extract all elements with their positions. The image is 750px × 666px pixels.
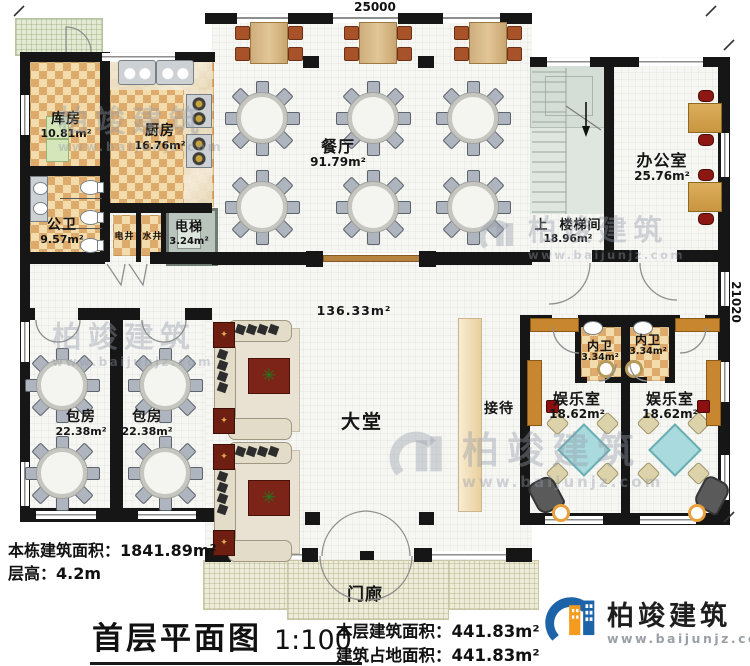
wall [419,251,436,267]
room-label-elevator: 电梯 3.24m² [166,221,212,247]
round-table [448,93,498,143]
wall [414,548,432,562]
dining-opening-threshold [323,255,421,262]
room-label-office: 办公室 25.76m² [612,152,712,183]
toilet-tank [97,182,104,193]
stall-divider [60,198,102,199]
room-label-ensuite-wc-2: 内卫 3.34m² [625,334,671,358]
round-table [237,182,287,232]
floor-lamp [552,504,570,522]
window [721,133,729,177]
brand-logo: 柏竣建筑 www.baijunjz.com [543,592,750,656]
toilet-tank [97,240,104,251]
dining-chair [285,201,300,214]
wall [78,308,140,320]
kitchen-sink [156,60,194,85]
dining-chair [344,47,359,61]
dining-chair [507,47,522,61]
window [432,551,506,559]
dining-chair [256,230,269,245]
reception-counter [458,318,482,512]
window [721,272,729,306]
round-table [348,182,398,232]
dimension-right-height: 21020 [729,272,743,332]
brand-logo-icon [543,592,599,656]
wash-basin [33,202,48,215]
floor-lamp [688,504,706,522]
dining-chair [288,47,303,61]
floor-drain [625,360,643,378]
wash-basin [33,182,48,195]
room-label-dining-hall: 餐厅 91.79m² [292,138,384,169]
wall [506,548,532,562]
room-label-ensuite-wc-1: 内卫 3.34m² [577,340,623,364]
wall [590,57,639,67]
rect-dining-table [469,22,507,64]
dining-chair [56,496,69,511]
wall [150,252,212,264]
wall [212,252,306,265]
dining-chair [285,112,300,125]
wall [305,512,320,525]
window [547,58,590,66]
dining-chair [188,467,203,480]
rect-dining-table [250,22,288,64]
office-desk [688,182,722,212]
wall [302,548,318,562]
wall [592,250,638,262]
dining-chair [396,201,411,214]
brand-website: www.baijunjz.com [607,631,750,646]
wall [398,13,443,24]
room-label-lobby: 大堂 [322,412,402,433]
dining-chair [397,47,412,61]
wall [605,377,647,383]
office-desk [688,103,722,133]
brand-name: 柏竣建筑 [607,602,750,632]
wall [530,57,547,67]
round-table [37,448,87,498]
wall [20,308,35,320]
round-table [140,360,190,410]
side-table-inlay: ✦ [220,331,228,340]
sofa-pillows [236,447,278,456]
building-total-stats: 本栋建筑面积：1841.89m² 层高：4.2m [8,539,217,585]
dimension-top-width: 25000 [325,0,425,14]
dining-chair [288,26,303,40]
room-label-storage: 库房 10.81m² [28,112,104,140]
sofa-pillows [236,325,278,334]
cabinet [675,318,720,332]
round-table [348,93,398,143]
room-label-electric-shaft: 电井 [111,232,138,242]
wall [20,52,102,62]
round-table [448,182,498,232]
coffee-table: ✳ [248,358,290,394]
wall [530,250,550,262]
room-label-kitchen: 厨房 16.76m² [118,124,202,152]
office-chair [698,134,714,146]
dining-chair [256,141,269,156]
dining-chair [467,230,480,245]
dining-chair [496,201,511,214]
sofa-pillows [218,472,227,514]
dining-chair [235,47,250,61]
kitchen-stove [186,94,212,128]
kitchen-sink [118,60,156,85]
room-label-game-room-2: 娱乐室 18.62m² [627,391,713,421]
dining-chair [496,112,511,125]
room-label-water-shaft: 水井 [139,232,166,242]
dining-chair [344,26,359,40]
dining-chair [367,230,380,245]
round-table [140,448,190,498]
dining-chair [85,379,100,392]
window [36,511,96,519]
room-label-reception: 接待 [481,402,517,418]
plan-title-row: 首层平面图 1:100 [90,613,362,665]
wall [436,252,532,265]
office-chair [698,213,714,225]
dining-chair [396,112,411,125]
coffee-table: ✳ [248,480,290,516]
dining-chair [507,26,522,40]
wall [205,13,237,24]
entry-platform [15,18,103,56]
window [639,58,703,66]
sofa [228,418,292,440]
dining-chair [235,26,250,40]
wall [110,203,212,213]
wall [30,166,106,176]
room-label-stairwell: 上 楼梯间 18.96m² [528,219,608,245]
dining-chair [159,496,172,511]
wall [20,252,105,264]
floor-plan-page: ✳✳✦✦✦✦ 库房 10.81m² 厨房 16.76m² 公卫 9.57m² 电… [0,0,750,666]
dining-chair [454,47,469,61]
round-table [237,93,287,143]
wall [418,56,434,68]
wall [185,308,212,320]
side-table-inlay: ✦ [220,539,228,548]
room-label-game-room-1: 娱乐室 18.62m² [534,391,620,421]
side-table-inlay: ✦ [220,417,228,426]
wall [288,13,333,24]
window [138,511,196,519]
room-label-public-wc: 公卫 9.57m² [26,218,98,246]
office-chair [698,90,714,102]
dining-chair [454,26,469,40]
floor-area-stats: 本层建筑面积：441.83m² 建筑占地面积：441.83m² [336,620,540,666]
dining-chair [188,379,203,392]
wall [306,251,323,267]
wall [303,56,319,68]
wall [575,377,587,383]
room-label-private-room-2: 包房 22.38m² [104,410,190,438]
dining-chair [397,26,412,40]
cabinet [530,318,579,332]
toilet-tank [97,212,104,223]
side-table: ✦ [213,322,235,348]
toilet [583,321,603,335]
side-table-inlay: ✦ [220,453,228,462]
wall [360,551,374,560]
round-table [37,360,87,410]
stair-landing-inner [545,76,593,116]
plant: ✳ [262,490,276,507]
storage-rack [46,139,69,162]
window [21,322,29,362]
sofa-pillows [218,350,227,392]
window [721,362,729,402]
plant: ✳ [262,368,276,385]
lobby-area-value: 136.33m² [308,304,400,318]
window [640,516,696,524]
sofa [228,540,292,562]
wall [665,377,675,383]
dining-chair [85,467,100,480]
plan-title: 首层平面图 [92,613,262,658]
side-table: ✦ [213,408,235,434]
rect-dining-table [359,22,397,64]
wall [419,512,434,525]
room-label-porch: 门廊 [328,586,402,605]
side-table: ✦ [213,444,235,470]
dining-chair [467,141,480,156]
